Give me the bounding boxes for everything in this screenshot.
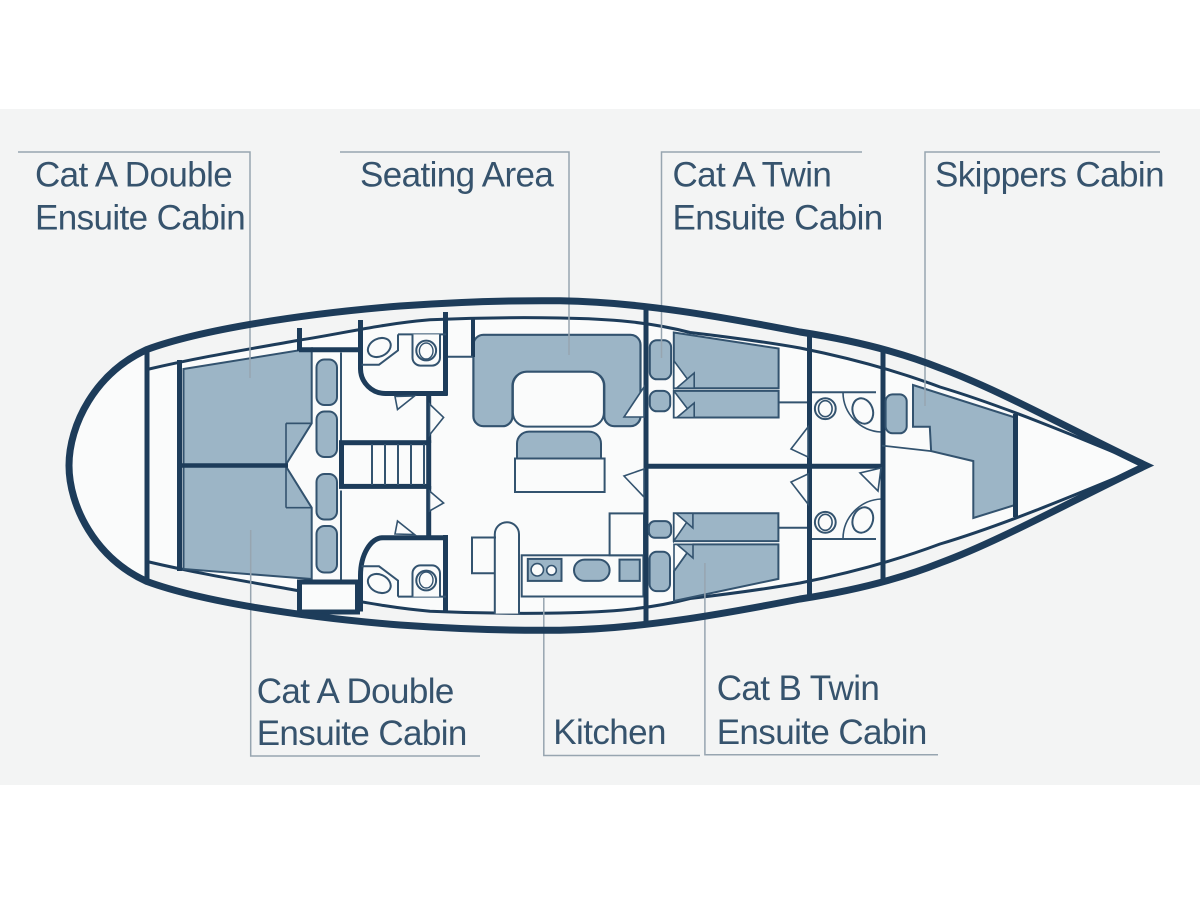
svg-text:Ensuite Cabin: Ensuite Cabin (673, 199, 883, 238)
svg-text:Kitchen: Kitchen (553, 713, 666, 752)
svg-text:Ensuite Cabin: Ensuite Cabin (717, 713, 927, 752)
svg-text:Ensuite Cabin: Ensuite Cabin (257, 714, 467, 753)
svg-text:Cat A Twin: Cat A Twin (673, 156, 832, 195)
svg-text:Seating Area: Seating Area (360, 156, 554, 195)
svg-text:Cat A Double: Cat A Double (257, 672, 454, 711)
svg-text:Skippers Cabin: Skippers Cabin (935, 156, 1164, 195)
svg-text:Ensuite Cabin: Ensuite Cabin (35, 199, 245, 238)
svg-text:Cat B Twin: Cat B Twin (717, 669, 880, 708)
svg-text:Cat A Double: Cat A Double (35, 156, 232, 195)
